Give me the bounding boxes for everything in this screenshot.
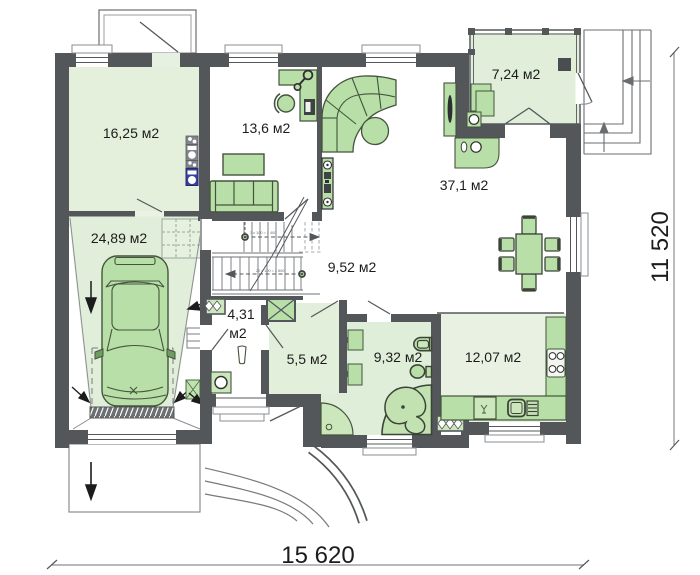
svg-text:м2: м2 (229, 325, 247, 341)
svg-text:24,89 м2: 24,89 м2 (91, 230, 148, 246)
svg-text:13,6 м2: 13,6 м2 (242, 120, 291, 136)
svg-text:16,25 м2: 16,25 м2 (103, 125, 160, 141)
svg-text:9,32 м2: 9,32 м2 (374, 349, 423, 365)
svg-text:11 520: 11 520 (647, 211, 674, 283)
svg-text:7,24 м2: 7,24 м2 (492, 66, 541, 82)
svg-text:20 x 100 = 1 800: 20 x 100 = 1 800 (256, 269, 284, 273)
svg-text:9,52 м2: 9,52 м2 (328, 259, 377, 275)
svg-text:15 620: 15 620 (281, 542, 354, 569)
svg-text:4,31: 4,31 (227, 306, 254, 322)
svg-text:12,07 м2: 12,07 м2 (465, 349, 522, 365)
svg-text:5,5 м2: 5,5 м2 (287, 351, 328, 367)
svg-text:37,1 м2: 37,1 м2 (440, 177, 489, 193)
svg-text:3 x 100 = 1 400: 3 x 100 = 1 400 (250, 231, 276, 235)
